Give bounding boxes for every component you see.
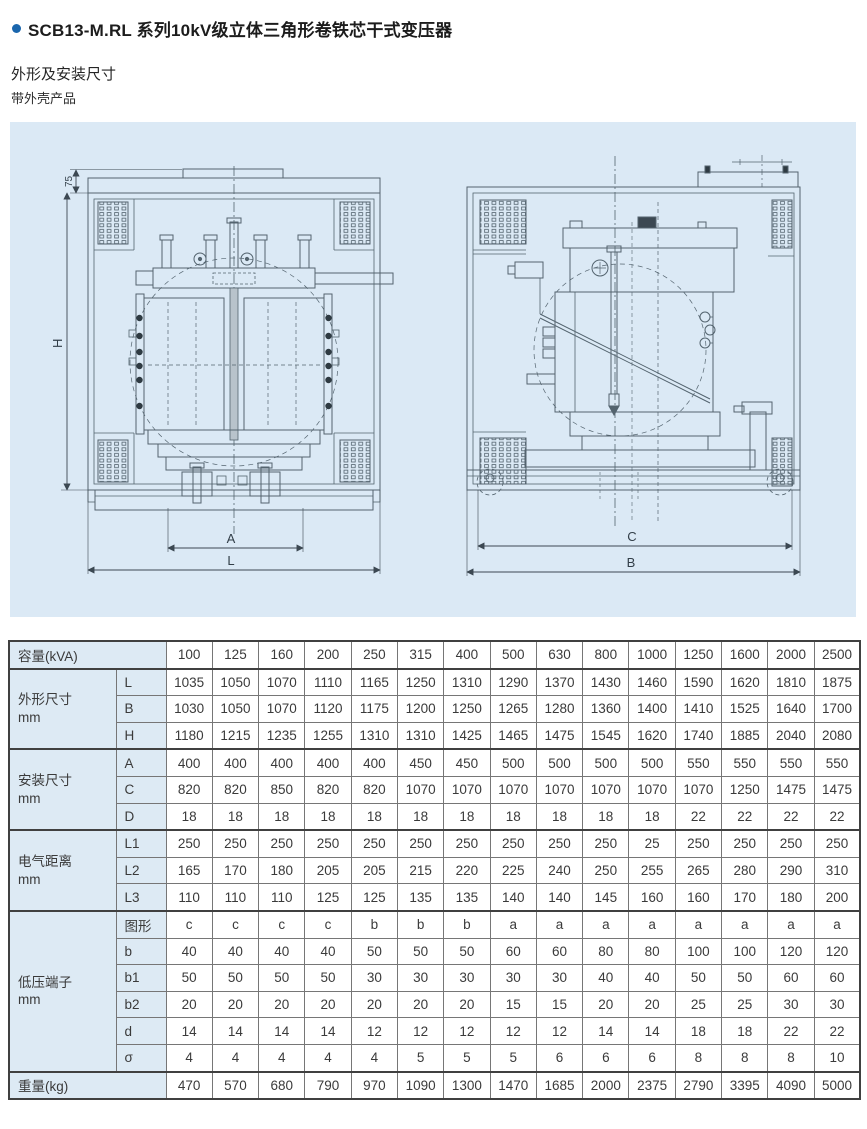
weight-value-cell: 470 — [166, 1072, 212, 1100]
value-cell: 18 — [305, 803, 351, 830]
value-cell: 205 — [305, 857, 351, 884]
value-cell: 120 — [768, 938, 814, 965]
value-cell: 1250 — [397, 669, 443, 696]
value-cell: 2080 — [814, 722, 860, 749]
value-cell: 170 — [722, 884, 768, 911]
value-cell: 205 — [351, 857, 397, 884]
capacity-value-cell: 630 — [536, 641, 582, 669]
value-cell: 250 — [397, 830, 443, 857]
value-cell: a — [768, 911, 814, 938]
value-cell: 820 — [166, 776, 212, 803]
value-cell: 1050 — [212, 669, 258, 696]
value-cell: 1280 — [536, 696, 582, 723]
value-cell: 100 — [675, 938, 721, 965]
value-cell: 18 — [351, 803, 397, 830]
value-cell: 1200 — [397, 696, 443, 723]
value-cell: 40 — [212, 938, 258, 965]
row-label-cell: 图形 — [116, 911, 166, 938]
value-cell: 15 — [490, 991, 536, 1018]
table-row: 电气距离mmL125025025025025025025025025025025… — [9, 830, 860, 857]
value-cell: 60 — [490, 938, 536, 965]
value-cell: 14 — [259, 1018, 305, 1045]
value-cell: 18 — [166, 803, 212, 830]
value-cell: 250 — [768, 830, 814, 857]
capacity-value-cell: 1250 — [675, 641, 721, 669]
weight-value-cell: 1685 — [536, 1072, 582, 1100]
value-cell: 6 — [629, 1044, 675, 1071]
value-cell: 14 — [305, 1018, 351, 1045]
value-cell: 20 — [629, 991, 675, 1018]
value-cell: 8 — [722, 1044, 768, 1071]
value-cell: 30 — [397, 965, 443, 992]
page-header: SCB13-M.RL 系列10kV级立体三角形卷铁芯干式变压器 — [12, 16, 452, 41]
value-cell: 400 — [305, 749, 351, 776]
weight-value-cell: 2375 — [629, 1072, 675, 1100]
group-unit: mm — [18, 991, 116, 1009]
value-cell: 1070 — [675, 776, 721, 803]
value-cell: 250 — [675, 830, 721, 857]
value-cell: 18 — [490, 803, 536, 830]
capacity-value-cell: 200 — [305, 641, 351, 669]
value-cell: 12 — [444, 1018, 490, 1045]
dim-label-C: C — [627, 529, 636, 544]
value-cell: 1640 — [768, 696, 814, 723]
value-cell: c — [212, 911, 258, 938]
value-cell: 1465 — [490, 722, 536, 749]
table-row: σ4444455566688810 — [9, 1044, 860, 1071]
value-cell: 170 — [212, 857, 258, 884]
value-cell: 18 — [444, 803, 490, 830]
value-cell: 50 — [675, 965, 721, 992]
table-row: 容量(kVA)100125160200250315400500630800100… — [9, 641, 860, 669]
value-cell: 1545 — [583, 722, 629, 749]
value-cell: a — [814, 911, 860, 938]
capacity-value-cell: 500 — [490, 641, 536, 669]
value-cell: 450 — [444, 749, 490, 776]
value-cell: c — [259, 911, 305, 938]
value-cell: 5 — [444, 1044, 490, 1071]
value-cell: a — [675, 911, 721, 938]
table-row: C820820850820820107010701070107010701070… — [9, 776, 860, 803]
value-cell: 1070 — [490, 776, 536, 803]
value-cell: 1070 — [536, 776, 582, 803]
value-cell: 40 — [583, 965, 629, 992]
group-unit: mm — [18, 871, 116, 889]
value-cell: 850 — [259, 776, 305, 803]
value-cell: 120 — [814, 938, 860, 965]
row-label-cell: C — [116, 776, 166, 803]
capacity-value-cell: 1000 — [629, 641, 675, 669]
product-note: 带外壳产品 — [11, 88, 76, 107]
value-cell: 18 — [397, 803, 443, 830]
row-label-cell: d — [116, 1018, 166, 1045]
dim-label-75: 75 — [64, 175, 75, 187]
value-cell: 1425 — [444, 722, 490, 749]
value-cell: 140 — [536, 884, 582, 911]
group-label: 低压端子 — [18, 974, 116, 992]
value-cell: 160 — [629, 884, 675, 911]
value-cell: 500 — [629, 749, 675, 776]
weight-value-cell: 3395 — [722, 1072, 768, 1100]
value-cell: 40 — [629, 965, 675, 992]
value-cell: 1525 — [722, 696, 768, 723]
group-label: 安装尺寸 — [18, 772, 116, 790]
value-cell: 18 — [675, 1018, 721, 1045]
value-cell: 1460 — [629, 669, 675, 696]
value-cell: 1070 — [444, 776, 490, 803]
weight-value-cell: 2000 — [583, 1072, 629, 1100]
value-cell: 250 — [583, 830, 629, 857]
value-cell: a — [536, 911, 582, 938]
row-label-cell: L1 — [116, 830, 166, 857]
value-cell: 60 — [768, 965, 814, 992]
value-cell: 280 — [722, 857, 768, 884]
row-label-cell: σ — [116, 1044, 166, 1071]
value-cell: 50 — [444, 938, 490, 965]
value-cell: 20 — [397, 991, 443, 1018]
value-cell: 1070 — [629, 776, 675, 803]
value-cell: 40 — [305, 938, 351, 965]
value-cell: 1290 — [490, 669, 536, 696]
value-cell: 240 — [536, 857, 582, 884]
value-cell: 1475 — [814, 776, 860, 803]
value-cell: 15 — [536, 991, 582, 1018]
value-cell: 550 — [675, 749, 721, 776]
weight-value-cell: 1300 — [444, 1072, 490, 1100]
value-cell: 50 — [259, 965, 305, 992]
row-label-cell: L — [116, 669, 166, 696]
weight-value-cell: 2790 — [675, 1072, 721, 1100]
row-label-cell: b1 — [116, 965, 166, 992]
row-label-cell: L2 — [116, 857, 166, 884]
value-cell: 18 — [722, 1018, 768, 1045]
value-cell: 12 — [351, 1018, 397, 1045]
value-cell: 1175 — [351, 696, 397, 723]
value-cell: 250 — [305, 830, 351, 857]
value-cell: 20 — [166, 991, 212, 1018]
value-cell: 14 — [212, 1018, 258, 1045]
value-cell: 160 — [675, 884, 721, 911]
value-cell: 100 — [722, 938, 768, 965]
section-subtitle: 外形及安装尺寸 — [11, 63, 116, 84]
table-row: 外形尺寸mmL103510501070111011651250131012901… — [9, 669, 860, 696]
value-cell: 290 — [768, 857, 814, 884]
value-cell: 18 — [629, 803, 675, 830]
value-cell: 500 — [490, 749, 536, 776]
page-title: SCB13-M.RL 系列10kV级立体三角形卷铁芯干式变压器 — [28, 16, 452, 41]
capacity-value-cell: 125 — [212, 641, 258, 669]
value-cell: 400 — [166, 749, 212, 776]
value-cell: 1310 — [351, 722, 397, 749]
table-row: 低压端子mm图形ccccbbbaaaaaaaa — [9, 911, 860, 938]
value-cell: 14 — [629, 1018, 675, 1045]
value-cell: 1810 — [768, 669, 814, 696]
table-row: b4040404050505060608080100100120120 — [9, 938, 860, 965]
value-cell: a — [490, 911, 536, 938]
value-cell: 1430 — [583, 669, 629, 696]
capacity-label-cell: 容量(kVA) — [9, 641, 166, 669]
value-cell: 25 — [722, 991, 768, 1018]
value-cell: 12 — [490, 1018, 536, 1045]
value-cell: 1590 — [675, 669, 721, 696]
value-cell: 4 — [212, 1044, 258, 1071]
value-cell: 1475 — [768, 776, 814, 803]
value-cell: 8 — [768, 1044, 814, 1071]
value-cell: b — [397, 911, 443, 938]
value-cell: 22 — [768, 803, 814, 830]
table-row: L311011011012512513513514014014516016017… — [9, 884, 860, 911]
value-cell: 1400 — [629, 696, 675, 723]
value-cell: 1120 — [305, 696, 351, 723]
capacity-value-cell: 100 — [166, 641, 212, 669]
value-cell: 5 — [490, 1044, 536, 1071]
technical-drawings: 75 H A L — [10, 122, 856, 617]
value-cell: 1070 — [259, 696, 305, 723]
value-cell: 20 — [444, 991, 490, 1018]
value-cell: a — [722, 911, 768, 938]
value-cell: 500 — [536, 749, 582, 776]
value-cell: 30 — [814, 991, 860, 1018]
value-cell: 820 — [212, 776, 258, 803]
value-cell: 50 — [166, 965, 212, 992]
row-label-cell: b2 — [116, 991, 166, 1018]
drawing-panel: 75 H A L — [10, 122, 856, 617]
value-cell: 1620 — [722, 669, 768, 696]
value-cell: 1255 — [305, 722, 351, 749]
table-row: b2202020202020201515202025253030 — [9, 991, 860, 1018]
value-cell: 135 — [444, 884, 490, 911]
capacity-value-cell: 1600 — [722, 641, 768, 669]
value-cell: 140 — [490, 884, 536, 911]
table-row: L216517018020520521522022524025025526528… — [9, 857, 860, 884]
value-cell: 1310 — [397, 722, 443, 749]
side-view-dimensions: C B — [467, 490, 800, 576]
bullet-icon — [12, 24, 21, 33]
value-cell: b — [351, 911, 397, 938]
value-cell: 110 — [259, 884, 305, 911]
value-cell: 30 — [536, 965, 582, 992]
value-cell: 1475 — [536, 722, 582, 749]
weight-label-cell: 重量(kg) — [9, 1072, 166, 1100]
value-cell: 250 — [166, 830, 212, 857]
row-label-cell: A — [116, 749, 166, 776]
capacity-value-cell: 2500 — [814, 641, 860, 669]
capacity-value-cell: 160 — [259, 641, 305, 669]
value-cell: 550 — [722, 749, 768, 776]
value-cell: 1875 — [814, 669, 860, 696]
group-unit: mm — [18, 709, 116, 727]
value-cell: c — [166, 911, 212, 938]
group-label-cell: 外形尺寸mm — [9, 669, 116, 750]
value-cell: 1620 — [629, 722, 675, 749]
value-cell: 1030 — [166, 696, 212, 723]
capacity-value-cell: 315 — [397, 641, 443, 669]
value-cell: 265 — [675, 857, 721, 884]
group-unit: mm — [18, 790, 116, 808]
value-cell: 22 — [814, 803, 860, 830]
value-cell: 60 — [536, 938, 582, 965]
value-cell: 1370 — [536, 669, 582, 696]
value-cell: 20 — [351, 991, 397, 1018]
value-cell: 22 — [814, 1018, 860, 1045]
dim-label-A: A — [227, 531, 236, 546]
weight-value-cell: 1090 — [397, 1072, 443, 1100]
value-cell: 145 — [583, 884, 629, 911]
row-label-cell: H — [116, 722, 166, 749]
value-cell: 220 — [444, 857, 490, 884]
value-cell: 250 — [351, 830, 397, 857]
value-cell: 22 — [768, 1018, 814, 1045]
value-cell: 550 — [814, 749, 860, 776]
value-cell: 310 — [814, 857, 860, 884]
vent-grille — [480, 200, 792, 486]
weight-value-cell: 4090 — [768, 1072, 814, 1100]
value-cell: 225 — [490, 857, 536, 884]
dim-label-B: B — [627, 555, 636, 570]
group-label: 外形尺寸 — [18, 691, 116, 709]
value-cell: 125 — [305, 884, 351, 911]
value-cell: 550 — [768, 749, 814, 776]
value-cell: 250 — [444, 830, 490, 857]
value-cell: 25 — [629, 830, 675, 857]
value-cell: 180 — [259, 857, 305, 884]
value-cell: 1050 — [212, 696, 258, 723]
value-cell: 6 — [536, 1044, 582, 1071]
value-cell: 1360 — [583, 696, 629, 723]
value-cell: 400 — [212, 749, 258, 776]
value-cell: 60 — [814, 965, 860, 992]
capacity-value-cell: 2000 — [768, 641, 814, 669]
dim-label-L: L — [227, 553, 234, 568]
spec-table: 容量(kVA)100125160200250315400500630800100… — [8, 640, 861, 1100]
value-cell: 50 — [212, 965, 258, 992]
capacity-value-cell: 400 — [444, 641, 490, 669]
value-cell: 4 — [305, 1044, 351, 1071]
value-cell: 255 — [629, 857, 675, 884]
value-cell: 1110 — [305, 669, 351, 696]
value-cell: 80 — [583, 938, 629, 965]
value-cell: 1070 — [259, 669, 305, 696]
value-cell: 18 — [536, 803, 582, 830]
value-cell: 250 — [259, 830, 305, 857]
capacity-value-cell: 800 — [583, 641, 629, 669]
value-cell: 2040 — [768, 722, 814, 749]
value-cell: 20 — [212, 991, 258, 1018]
value-cell: 30 — [490, 965, 536, 992]
value-cell: 1235 — [259, 722, 305, 749]
value-cell: 10 — [814, 1044, 860, 1071]
value-cell: 12 — [536, 1018, 582, 1045]
value-cell: 135 — [397, 884, 443, 911]
group-label-cell: 安装尺寸mm — [9, 749, 116, 830]
value-cell: 25 — [675, 991, 721, 1018]
value-cell: 80 — [629, 938, 675, 965]
value-cell: 50 — [397, 938, 443, 965]
row-label-cell: B — [116, 696, 166, 723]
value-cell: 110 — [212, 884, 258, 911]
value-cell: 500 — [583, 749, 629, 776]
weight-value-cell: 570 — [212, 1072, 258, 1100]
value-cell: 250 — [536, 830, 582, 857]
table-row: H118012151235125513101310142514651475154… — [9, 722, 860, 749]
table-row: D181818181818181818181822222222 — [9, 803, 860, 830]
value-cell: 1165 — [351, 669, 397, 696]
table-row: d141414141212121212141418182222 — [9, 1018, 860, 1045]
value-cell: 40 — [259, 938, 305, 965]
value-cell: 110 — [166, 884, 212, 911]
value-cell: 250 — [722, 830, 768, 857]
value-cell: 14 — [166, 1018, 212, 1045]
weight-value-cell: 680 — [259, 1072, 305, 1100]
value-cell: 20 — [583, 991, 629, 1018]
value-cell: 8 — [675, 1044, 721, 1071]
value-cell: 4 — [259, 1044, 305, 1071]
value-cell: a — [629, 911, 675, 938]
row-label-cell: D — [116, 803, 166, 830]
row-label-cell: b — [116, 938, 166, 965]
value-cell: 1250 — [722, 776, 768, 803]
value-cell: 180 — [768, 884, 814, 911]
value-cell: 5 — [397, 1044, 443, 1071]
front-view-drawing — [88, 166, 393, 534]
weight-value-cell: 5000 — [814, 1072, 860, 1100]
value-cell: 22 — [675, 803, 721, 830]
value-cell: 4 — [166, 1044, 212, 1071]
value-cell: 6 — [583, 1044, 629, 1071]
group-label-cell: 电气距离mm — [9, 830, 116, 911]
value-cell: 18 — [259, 803, 305, 830]
value-cell: 18 — [583, 803, 629, 830]
weight-value-cell: 790 — [305, 1072, 351, 1100]
value-cell: 250 — [212, 830, 258, 857]
value-cell: b — [444, 911, 490, 938]
table-row: 重量(kg)4705706807909701090130014701685200… — [9, 1072, 860, 1100]
value-cell: 1180 — [166, 722, 212, 749]
value-cell: 820 — [351, 776, 397, 803]
value-cell: 400 — [351, 749, 397, 776]
value-cell: 450 — [397, 749, 443, 776]
value-cell: 200 — [814, 884, 860, 911]
value-cell: 20 — [259, 991, 305, 1018]
value-cell: 250 — [814, 830, 860, 857]
value-cell: 1265 — [490, 696, 536, 723]
value-cell: 30 — [351, 965, 397, 992]
capacity-value-cell: 250 — [351, 641, 397, 669]
value-cell: 12 — [397, 1018, 443, 1045]
value-cell: 40 — [166, 938, 212, 965]
table-row: b1505050503030303030404050506060 — [9, 965, 860, 992]
value-cell: 18 — [212, 803, 258, 830]
value-cell: 30 — [444, 965, 490, 992]
value-cell: 4 — [351, 1044, 397, 1071]
value-cell: 250 — [583, 857, 629, 884]
value-cell: 165 — [166, 857, 212, 884]
table-row: B103010501070112011751200125012651280136… — [9, 696, 860, 723]
value-cell: 1310 — [444, 669, 490, 696]
value-cell: 14 — [583, 1018, 629, 1045]
table-row: 安装尺寸mmA400400400400400450450500500500500… — [9, 749, 860, 776]
value-cell: 1885 — [722, 722, 768, 749]
value-cell: 215 — [397, 857, 443, 884]
value-cell: 50 — [305, 965, 351, 992]
value-cell: 1740 — [675, 722, 721, 749]
row-label-cell: L3 — [116, 884, 166, 911]
weight-value-cell: 1470 — [490, 1072, 536, 1100]
value-cell: 1070 — [397, 776, 443, 803]
value-cell: a — [583, 911, 629, 938]
side-view-drawing — [467, 155, 800, 526]
value-cell: 125 — [351, 884, 397, 911]
